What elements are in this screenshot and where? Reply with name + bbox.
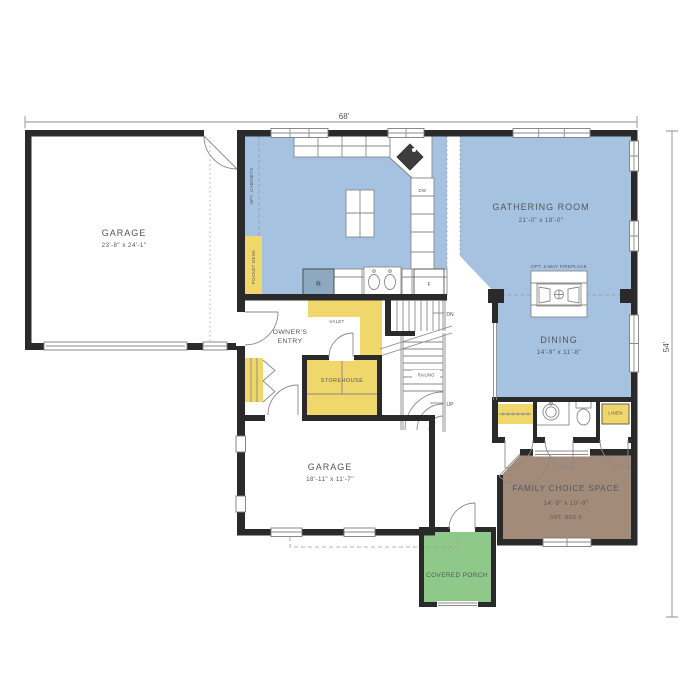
wall-bath-seg2 <box>533 437 545 443</box>
porch-label: COVERED PORCH <box>426 572 488 579</box>
gathering-dims: 21'-0" x 18'-0" <box>519 217 564 224</box>
owners-entry-opening <box>236 312 246 346</box>
valet-label: VALET <box>329 319 344 324</box>
garage-small-dims: 18'-11" x 11'-7" <box>306 476 354 483</box>
pocket-desk-label: POCKET DESK <box>251 250 256 284</box>
wall-stair-horiz <box>385 331 415 336</box>
wall-porch-top-left <box>419 527 450 532</box>
bifold-door-upper <box>263 360 275 381</box>
wall-fireplace-stub-right <box>620 289 637 303</box>
valet-cabinet <box>308 299 382 355</box>
family-choice-area <box>500 455 631 539</box>
family-cased-opening <box>533 448 590 457</box>
wall-porch-top-right <box>475 527 496 532</box>
fireplace <box>531 271 587 317</box>
storehouse-door <box>329 333 353 357</box>
dishwasher-label: DW <box>419 188 427 193</box>
garage-main-dims: 23'-8" x 24'-1" <box>102 242 147 249</box>
lavatory-bowl <box>546 407 556 417</box>
owners-entry-label-1: OWNER'S <box>273 329 308 336</box>
wall-garage2-right <box>429 420 435 535</box>
wall-porch-right <box>491 527 496 607</box>
wall-storehouse-left <box>302 355 307 421</box>
wall-dining-bottom <box>492 397 637 402</box>
dining-dims: 14'-9" x 11'-8" <box>537 349 581 356</box>
covered-porch-area <box>424 532 491 602</box>
wall-storehouse-right <box>377 355 382 421</box>
dining-cased-opening <box>494 323 497 400</box>
wall-bath-seg1 <box>492 437 505 443</box>
wall-garage2-bottom <box>237 529 435 536</box>
sink-faucet <box>412 148 416 152</box>
garage-small-label: GARAGE <box>308 462 353 472</box>
stairs-down-label: DN <box>446 312 454 318</box>
toilet-bowl <box>577 409 590 425</box>
floor-plan-page: 68' 54' GARAGE 23'-8" x 24'-1" GATHERING… <box>0 0 700 700</box>
storehouse-label: STOREHOUSE <box>321 378 364 384</box>
bifold-door-lower <box>263 381 275 402</box>
wall-dining-left-bottom <box>492 400 498 437</box>
gathering-label: GATHERING ROOM <box>492 202 589 212</box>
wall-bath-seg3 <box>573 437 600 443</box>
refrigerator-label: F <box>427 282 430 288</box>
garage-main-label: GARAGE <box>102 228 147 238</box>
window-left-2 <box>236 496 246 512</box>
wall-entry-stub <box>237 415 265 421</box>
porch-door <box>449 503 475 529</box>
porch-opening <box>437 601 478 608</box>
family-dims: 14'-9" x 10'-9" <box>544 500 589 507</box>
dim-right-label: 54' <box>662 341 671 352</box>
dim-line-right <box>666 131 678 617</box>
stairwell-edge-upper <box>443 297 445 331</box>
wall-bath-div2 <box>596 402 600 437</box>
floor-plan: 68' 54' GARAGE 23'-8" x 24'-1" GATHERING… <box>0 0 700 700</box>
owners-entry-label-2: ENTRY <box>278 338 303 345</box>
lavatory-faucet <box>550 402 553 405</box>
family-label: FAMILY CHOICE SPACE <box>512 484 619 493</box>
wall-family-left <box>497 475 503 541</box>
winder-treads <box>405 392 443 430</box>
range-label: R <box>316 281 321 288</box>
dining-label: DINING <box>540 335 578 345</box>
toilet-tank <box>576 401 591 408</box>
garage-door-opening <box>204 129 237 138</box>
wall-bath-seg4 <box>628 437 637 443</box>
entry-closet <box>245 358 263 402</box>
storehouse-opening <box>329 354 354 361</box>
linen-label: LINEN <box>608 411 622 416</box>
wall-garage2-top <box>305 415 435 421</box>
stairs-upper-treads <box>397 301 439 331</box>
opt-cabinets-label: OPT. CABINETS <box>249 168 254 205</box>
wall-stair-vert <box>385 294 391 336</box>
dim-top-label: 68' <box>339 112 350 121</box>
wall-kitchen-left <box>237 294 307 301</box>
stairs-up-label: UP <box>447 402 455 408</box>
wall-garage-left <box>25 130 32 350</box>
family-note: OPT. BED 5 <box>550 515 582 521</box>
railing-label: RAILING <box>418 373 435 378</box>
window-left-1 <box>236 436 246 452</box>
fireplace-label: OPT. 2-WAY FIREPLACE <box>531 264 587 269</box>
wall-fireplace-stub-left <box>488 289 504 303</box>
wall-under-counter <box>300 294 447 301</box>
dim-line-top <box>25 116 637 128</box>
garage-entry-door <box>204 136 237 169</box>
wall-porch-left <box>419 527 424 607</box>
stairs-lower-treads <box>403 342 443 391</box>
wall-bath-div1 <box>533 402 537 437</box>
